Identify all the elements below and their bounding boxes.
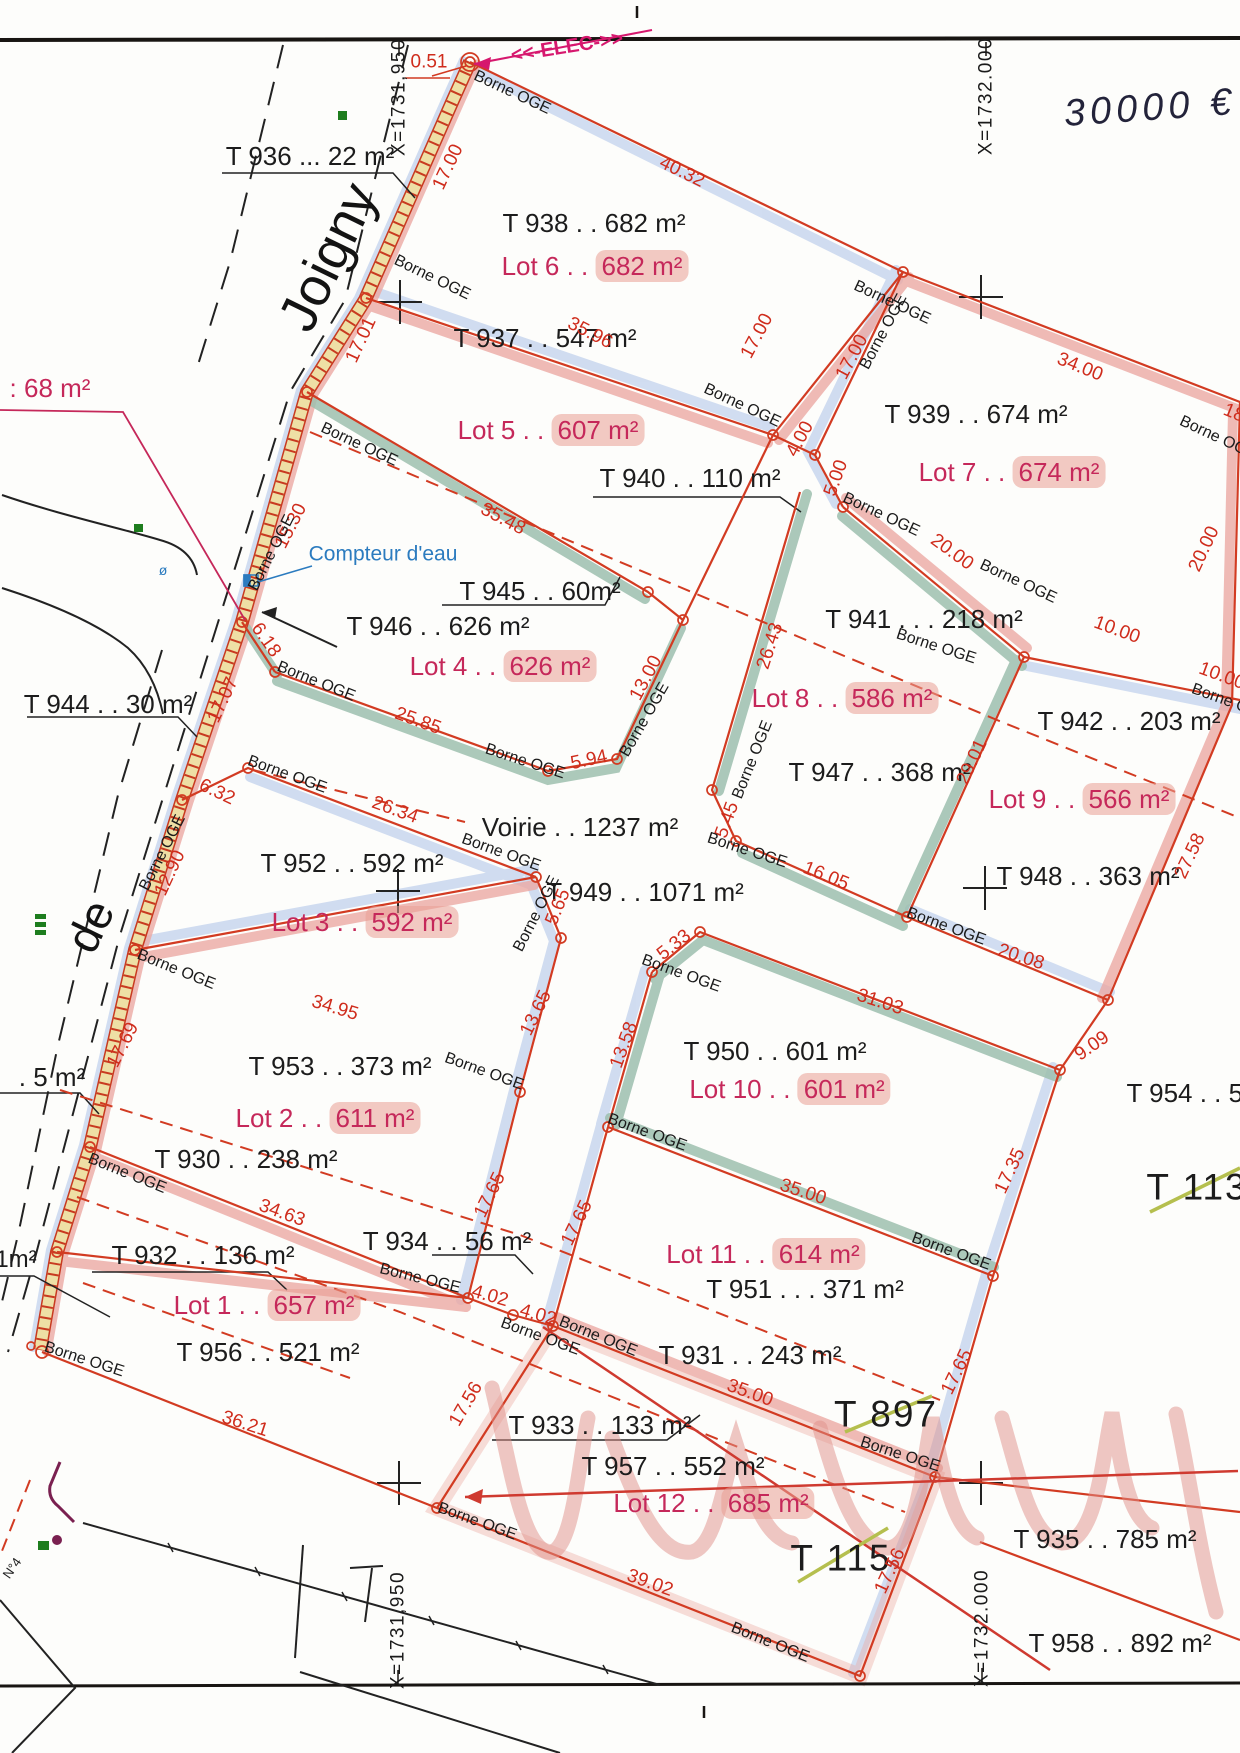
lot-area-highlighted: 674 m²	[1013, 456, 1106, 488]
measurement-labels-11: 5.94	[569, 747, 609, 773]
parcel-labels-T932: T 932 . . 136 m²	[111, 1242, 294, 1268]
measurement-labels-13: 26.43	[754, 620, 787, 671]
lot-area-highlighted: 592 m²	[366, 906, 459, 938]
measurement-labels-5: 17.07	[204, 674, 241, 725]
lot-labels-lot-3: Lot 3 . . 592 m²	[272, 909, 459, 935]
coordinate-labels-3: X=1732.000	[973, 1569, 992, 1687]
misc-labels-valve-symbol: ø	[159, 563, 168, 577]
parcel-labels-T952: T 952 . . 592 m²	[260, 850, 443, 876]
parcel-labels-T944: T 944 . . 30 m²	[24, 691, 193, 717]
parcel-labels-T933: T 933 . . 133 m²	[508, 1412, 691, 1438]
parcel-labels-T940: T 940 . . 110 m²	[599, 465, 780, 491]
street-labels-street-de: de	[58, 893, 122, 959]
lot-labels-lot-12: Lot 12 . . 685 m²	[613, 1490, 814, 1516]
measurement-labels-42: 17.35	[991, 1145, 1028, 1196]
parcel-labels-T945: T 945 . . 60m²	[459, 578, 620, 604]
cadastral-plan-canvas: T 936 ... 22 m²T 938 . . 682 m²T 937 . .…	[0, 0, 1240, 1753]
measurement-labels-0: 0.51	[411, 53, 448, 72]
measurement-labels-1: 17.00	[429, 141, 466, 192]
misc-labels-price-note: 30000 €	[1063, 83, 1238, 133]
borne-labels-5: Borne OGE	[318, 420, 400, 469]
borne-labels-28: Borne OGE	[42, 1340, 126, 1381]
lot-labels-lot-1: Lot 1 . . 657 m²	[174, 1292, 361, 1318]
parcel-labels-T931: T 931 . . 243 m²	[658, 1342, 841, 1368]
borne-labels-33: Borne OGE	[729, 1620, 812, 1666]
borne-labels-21: Borne OGE	[904, 905, 987, 948]
lot-number: Lot 7 . .	[919, 457, 1013, 487]
lot-area-highlighted: 611 m²	[329, 1102, 420, 1134]
measurement-labels-38: 9.09	[1071, 1028, 1112, 1065]
borne-labels-6: Borne OGE	[246, 513, 298, 594]
coordinate-labels-1: X=1732.000	[977, 37, 996, 155]
borne-labels-14: Borne OGE	[705, 831, 789, 872]
lot-area-highlighted: 685 m²	[722, 1487, 815, 1519]
measurement-labels-16: 13.65	[517, 987, 555, 1038]
measurement-labels-9: 25.85	[392, 704, 443, 738]
misc-labels-no4: N°4	[0, 1555, 23, 1580]
parcel-labels-T930: T 930 . . 238 m²	[154, 1146, 337, 1172]
measurement-labels-26: 4.00	[783, 418, 817, 460]
parcel-labels-T934: T 934 . . 56 m²	[363, 1228, 532, 1254]
lot-area-highlighted: 566 m²	[1083, 783, 1176, 815]
borne-labels-29: Borne OGE	[378, 1261, 462, 1297]
measurement-labels-39: 20.08	[995, 941, 1046, 974]
misc-labels-area-1: 1m²	[0, 1248, 37, 1272]
measurement-labels-40: 27.58	[1171, 830, 1208, 881]
measurement-labels-4: 6.18	[248, 619, 285, 660]
lot-area-highlighted: 614 m²	[773, 1238, 866, 1270]
misc-labels-area-5: . 5 m²	[19, 1064, 85, 1090]
lot-labels-lot-10: Lot 10 . . 601 m²	[689, 1076, 890, 1102]
lot-number: Lot 5 . .	[458, 415, 552, 445]
measurement-labels-29: 40.32	[656, 153, 707, 191]
measurement-labels-6: 6.32	[196, 776, 238, 809]
measurement-labels-23: 34.00	[1054, 349, 1105, 384]
measurement-labels-31: 34.95	[309, 992, 360, 1024]
parcel-labels-large-T113: T 113	[1146, 1169, 1240, 1206]
parcel-labels-T953: T 953 . . 373 m²	[248, 1053, 431, 1079]
parcel-labels-T957: T 957 . . 552 m²	[581, 1453, 764, 1479]
map-labels-layer: T 936 ... 22 m²T 938 . . 682 m²T 937 . .…	[0, 0, 1240, 1753]
borne-labels-26: Borne OGE	[605, 1111, 688, 1154]
borne-labels-34: Borne OGE	[858, 1435, 942, 1476]
lot-number: Lot 9 . .	[989, 784, 1083, 814]
borne-labels-0: Borne OGE	[471, 68, 553, 117]
parcel-labels-T947: T 947 . . 368 m²	[788, 759, 971, 785]
lot-area-highlighted: 601 m²	[798, 1073, 891, 1105]
lot-area-highlighted: 586 m²	[846, 682, 939, 714]
parcel-labels-T948: T 948 . . 363 m²	[996, 863, 1179, 889]
measurement-labels-50: 36.21	[219, 1408, 270, 1441]
measurement-labels-47: 17.56	[446, 1379, 486, 1430]
borne-labels-22: Borne OGE	[135, 947, 218, 993]
measurement-labels-27: 17.00	[737, 311, 776, 362]
borne-labels-32: Borne OGE	[435, 1500, 518, 1543]
measurement-labels-21: 10.00	[1091, 613, 1142, 647]
measurement-labels-2: 17.01	[342, 314, 379, 365]
lot-area-highlighted: 607 m²	[552, 414, 645, 446]
borne-labels-10: Borne OGE	[483, 742, 567, 783]
measurement-labels-49: 39.02	[624, 1566, 675, 1600]
parcel-labels-T951: T 951 . . . 371 m²	[706, 1276, 904, 1302]
borne-labels-17: Borne OGE	[977, 557, 1059, 606]
measurement-labels-20: 20.00	[1185, 523, 1222, 574]
parcel-labels-T949: T 949 . . 1071 m²	[546, 879, 744, 905]
lot-labels-lot-11: Lot 11 . . 614 m²	[666, 1241, 865, 1267]
lot-labels-lot-5: Lot 5 . . 607 m²	[458, 417, 645, 443]
measurement-labels-10: 35.48	[478, 499, 529, 538]
parcel-labels-T935: T 935 . . 785 m²	[1013, 1526, 1196, 1552]
measurement-labels-35: 17.65	[938, 1346, 976, 1397]
lot-labels-lot-7: Lot 7 . . 674 m²	[919, 459, 1106, 485]
parcel-labels-T950: T 950 . . 601 m²	[683, 1038, 866, 1064]
borne-labels-4: Borne OGE	[701, 381, 783, 430]
measurement-labels-32: 17.69	[104, 1020, 143, 1071]
parcel-labels-T946: T 946 . . 626 m²	[346, 613, 529, 639]
lot-area-highlighted: 657 m²	[268, 1289, 361, 1321]
misc-labels-elec-note: <<-ELEC->>	[509, 28, 624, 65]
lot-area-highlighted: 626 m²	[504, 650, 597, 682]
lot-number: Lot 6 . .	[502, 251, 596, 281]
borne-labels-25: Borne OGE	[639, 952, 722, 995]
parcel-labels-T958: T 958 . . 892 m²	[1028, 1630, 1211, 1656]
parcel-labels-T942: T 942 . . 203 m²	[1037, 708, 1220, 734]
lot-number: Lot 2 . .	[236, 1103, 330, 1133]
lot-labels-lot-8: Lot 8 . . 586 m²	[752, 685, 939, 711]
borne-labels-16: Borne OGE	[840, 490, 922, 539]
parcel-labels-VOIRIE: Voirie . . 1237 m²	[482, 814, 679, 840]
borne-labels-3: Borne OGE	[391, 253, 472, 304]
measurement-labels-43: 35.00	[777, 1176, 828, 1209]
lot-number: Lot 3 . .	[272, 907, 366, 937]
parcel-labels-T938: T 938 . . 682 m²	[502, 210, 685, 236]
parcel-labels-T939: T 939 . . 674 m²	[884, 401, 1067, 427]
misc-labels-area-68: : 68 m²	[10, 375, 91, 401]
measurement-labels-18: 16.05	[800, 858, 851, 893]
borne-labels-8: Borne OGE	[245, 753, 328, 796]
measurement-labels-8: 26.34	[369, 793, 420, 827]
street-labels-street-joigny: Joigny	[270, 175, 387, 339]
coordinate-labels-2: X=1731,950	[389, 1571, 408, 1689]
measurement-labels-51: 34.63	[256, 1196, 307, 1230]
lot-labels-lot-4: Lot 4 . . 626 m²	[410, 653, 597, 679]
coordinate-labels-0: X=1731,950	[390, 38, 409, 156]
measurement-labels-44: 35.00	[724, 1376, 775, 1410]
borne-labels-24: Borne OGE	[442, 1050, 525, 1093]
measurement-labels-45: 4.02	[470, 1282, 511, 1310]
lot-number: Lot 10 . .	[689, 1074, 797, 1104]
borne-labels-15: Borne OGE	[730, 719, 776, 802]
lot-area-highlighted: 682 m²	[596, 250, 689, 282]
lot-number: Lot 11 . .	[666, 1239, 772, 1269]
lot-labels-lot-2: Lot 2 . . 611 m²	[236, 1105, 421, 1131]
lot-number: Lot 12 . .	[613, 1488, 721, 1518]
parcel-labels-large-T115: T 115	[790, 1540, 891, 1577]
parcel-labels-T936: T 936 ... 22 m²	[226, 143, 395, 169]
measurement-labels-37: 31.03	[854, 986, 905, 1019]
lot-number: Lot 4 . .	[410, 651, 504, 681]
parcel-labels-T941: T 941 . . . 218 m²	[825, 606, 1023, 632]
lot-labels-lot-6: Lot 6 . . 682 m²	[502, 253, 689, 279]
measurement-labels-34: 17.65	[558, 1197, 596, 1248]
lot-labels-lot-9: Lot 9 . . 566 m²	[989, 786, 1176, 812]
misc-labels-water-meter-note: Compteur d'eau	[309, 544, 458, 565]
lot-number: Lot 8 . .	[752, 683, 846, 713]
parcel-labels-T956: T 956 . . 521 m²	[176, 1339, 359, 1365]
measurement-labels-24: 18	[1221, 400, 1240, 426]
lot-number: Lot 1 . .	[174, 1290, 268, 1320]
measurement-labels-19: 20.00	[927, 530, 977, 573]
measurement-labels-36: 13.58	[607, 1019, 641, 1070]
measurement-labels-33: 17.65	[471, 1169, 509, 1220]
borne-labels-27: Borne OGE	[909, 1230, 992, 1273]
parcel-labels-T954: T 954 . . 58	[1126, 1080, 1240, 1106]
parcel-labels-large-T897: T 897	[834, 1396, 938, 1433]
borne-labels-7: Borne OGE	[275, 659, 358, 705]
